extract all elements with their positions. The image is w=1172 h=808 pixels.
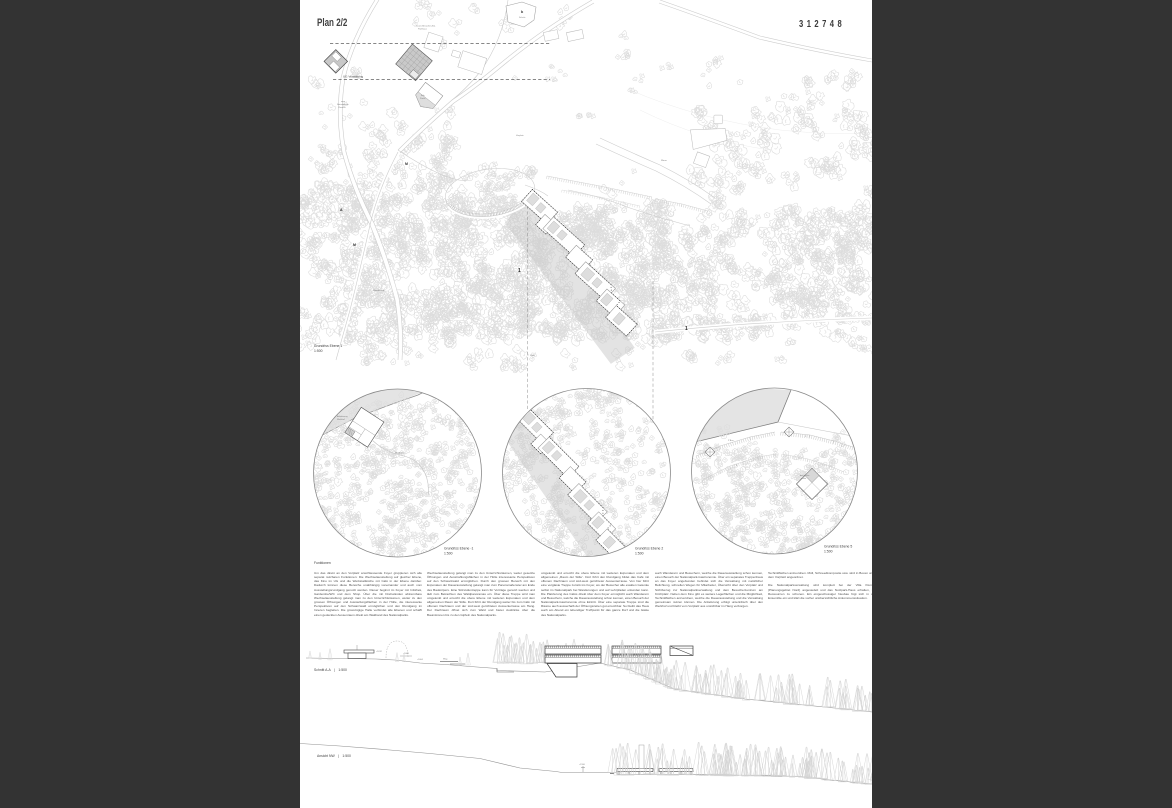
svg-text:Weg: Weg [443, 659, 448, 661]
svg-text:M: M [405, 162, 408, 166]
svg-text:1: 1 [685, 326, 688, 332]
svg-text:Nationalpark: Nationalpark [337, 103, 350, 106]
svg-text:zum: zum [341, 101, 345, 103]
svg-text:neues Besucher-Nat.: neues Besucher-Nat. [416, 25, 436, 28]
svg-text:Wiese: Wiese [661, 160, 668, 162]
svg-text:Wanderweg: Wanderweg [373, 289, 385, 292]
svg-text:+1604: +1604 [417, 659, 424, 661]
svg-text:Parkhaus: Parkhaus [418, 28, 427, 31]
svg-text:+1596: +1596 [579, 764, 586, 766]
svg-text:Punkt: Punkt [420, 97, 426, 100]
svg-text:Waldfoyer: Waldfoyer [395, 452, 405, 455]
svg-text:Vorplatz: Vorplatz [516, 134, 524, 137]
svg-text:1:500: 1:500 [824, 550, 833, 554]
svg-text:UG Verwaltung: UG Verwaltung [343, 75, 364, 79]
svg-text:Grundriss Ebene 2: Grundriss Ebene 2 [635, 547, 663, 551]
svg-text:1:500: 1:500 [635, 552, 644, 556]
svg-text:Anlieferung: Anlieferung [337, 415, 348, 418]
svg-text:Grundriss Ebene 1: Grundriss Ebene 1 [314, 344, 342, 348]
svg-text:M: M [353, 243, 356, 247]
svg-text:Grundriss Ebene -1: Grundriss Ebene -1 [444, 547, 474, 551]
svg-text:P Bus: P Bus [728, 440, 734, 442]
svg-text:Grundriss Ebene 5: Grundriss Ebene 5 [824, 545, 852, 549]
svg-text:+1612: +1612 [376, 651, 383, 653]
svg-text:1:500: 1:500 [444, 552, 453, 556]
svg-text:Schule: Schule [519, 17, 526, 19]
svg-text:1: 1 [518, 268, 521, 274]
svg-text:1:500: 1:500 [314, 349, 323, 353]
svg-text:Schnitt A-A | 1:500: Schnitt A-A | 1:500 [314, 668, 347, 672]
svg-text:Aussichts-: Aussichts- [800, 474, 810, 477]
svg-text:punkt: punkt [801, 477, 807, 480]
svg-text:Werkhof: Werkhof [337, 418, 345, 421]
svg-text:Cluozza: Cluozza [338, 107, 346, 109]
svg-text:Ansicht NW | 1:500: Ansicht NW | 1:500 [317, 754, 351, 758]
